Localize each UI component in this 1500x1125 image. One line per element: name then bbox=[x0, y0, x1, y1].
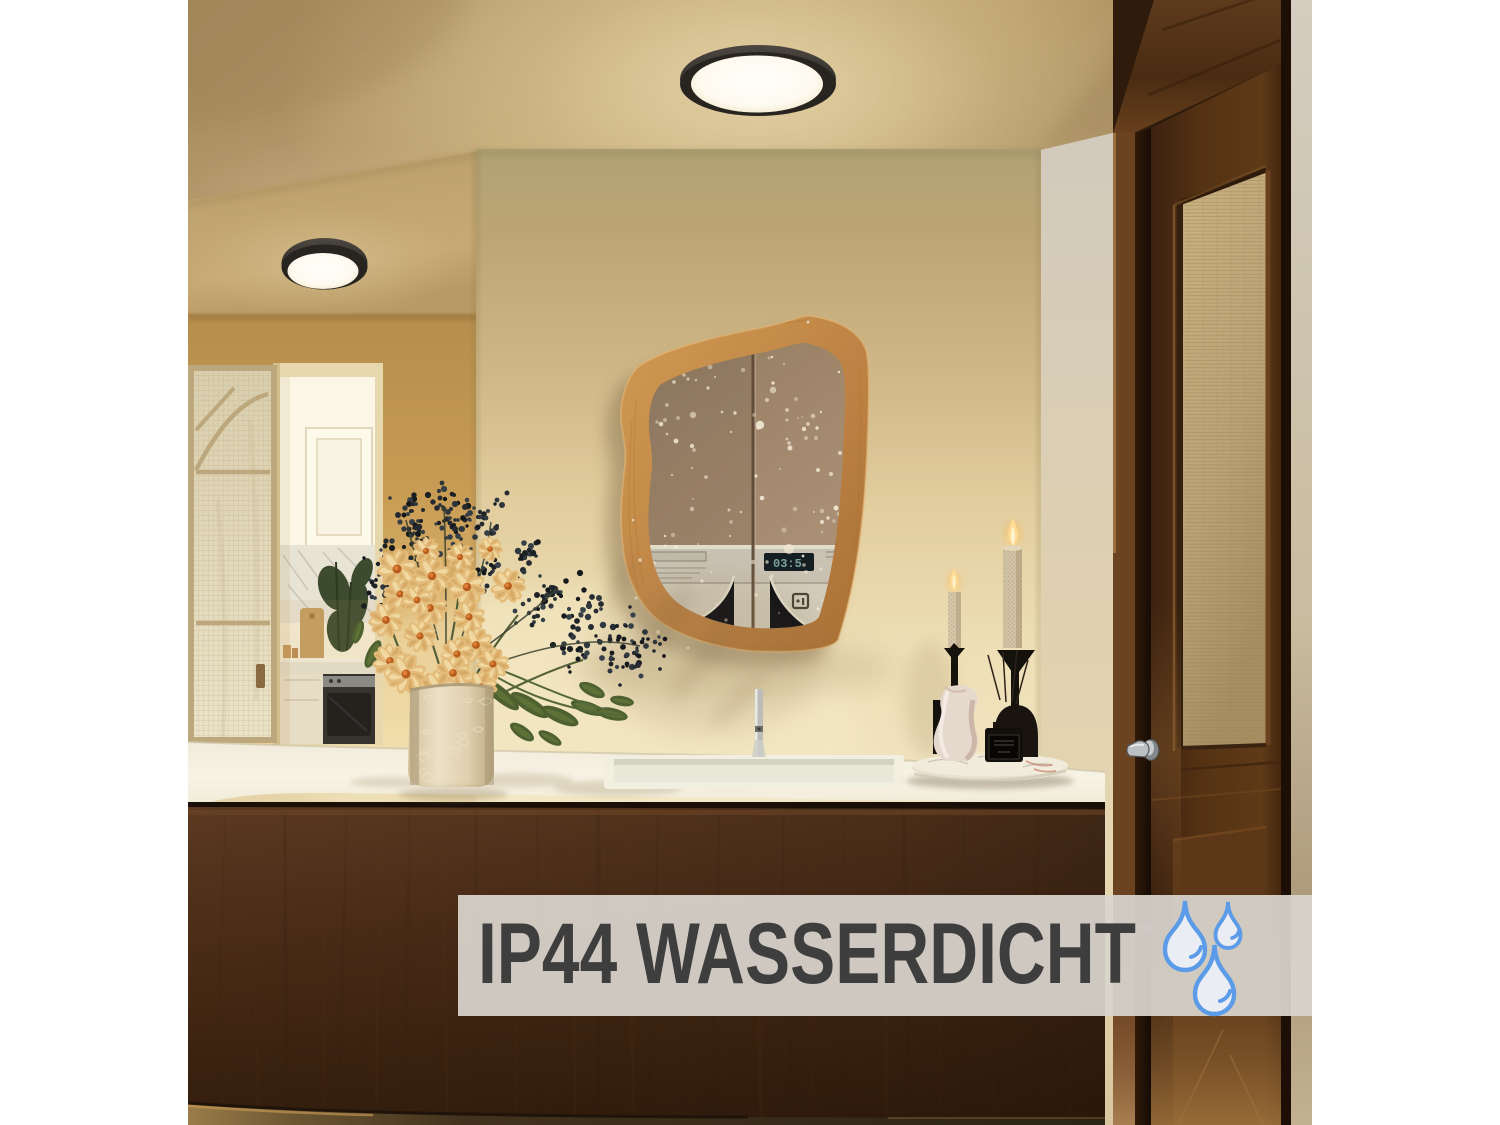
svg-text:03:5: 03:5 bbox=[773, 557, 802, 571]
svg-text:IP44 WASSERDICHT: IP44 WASSERDICHT bbox=[478, 906, 1136, 1002]
